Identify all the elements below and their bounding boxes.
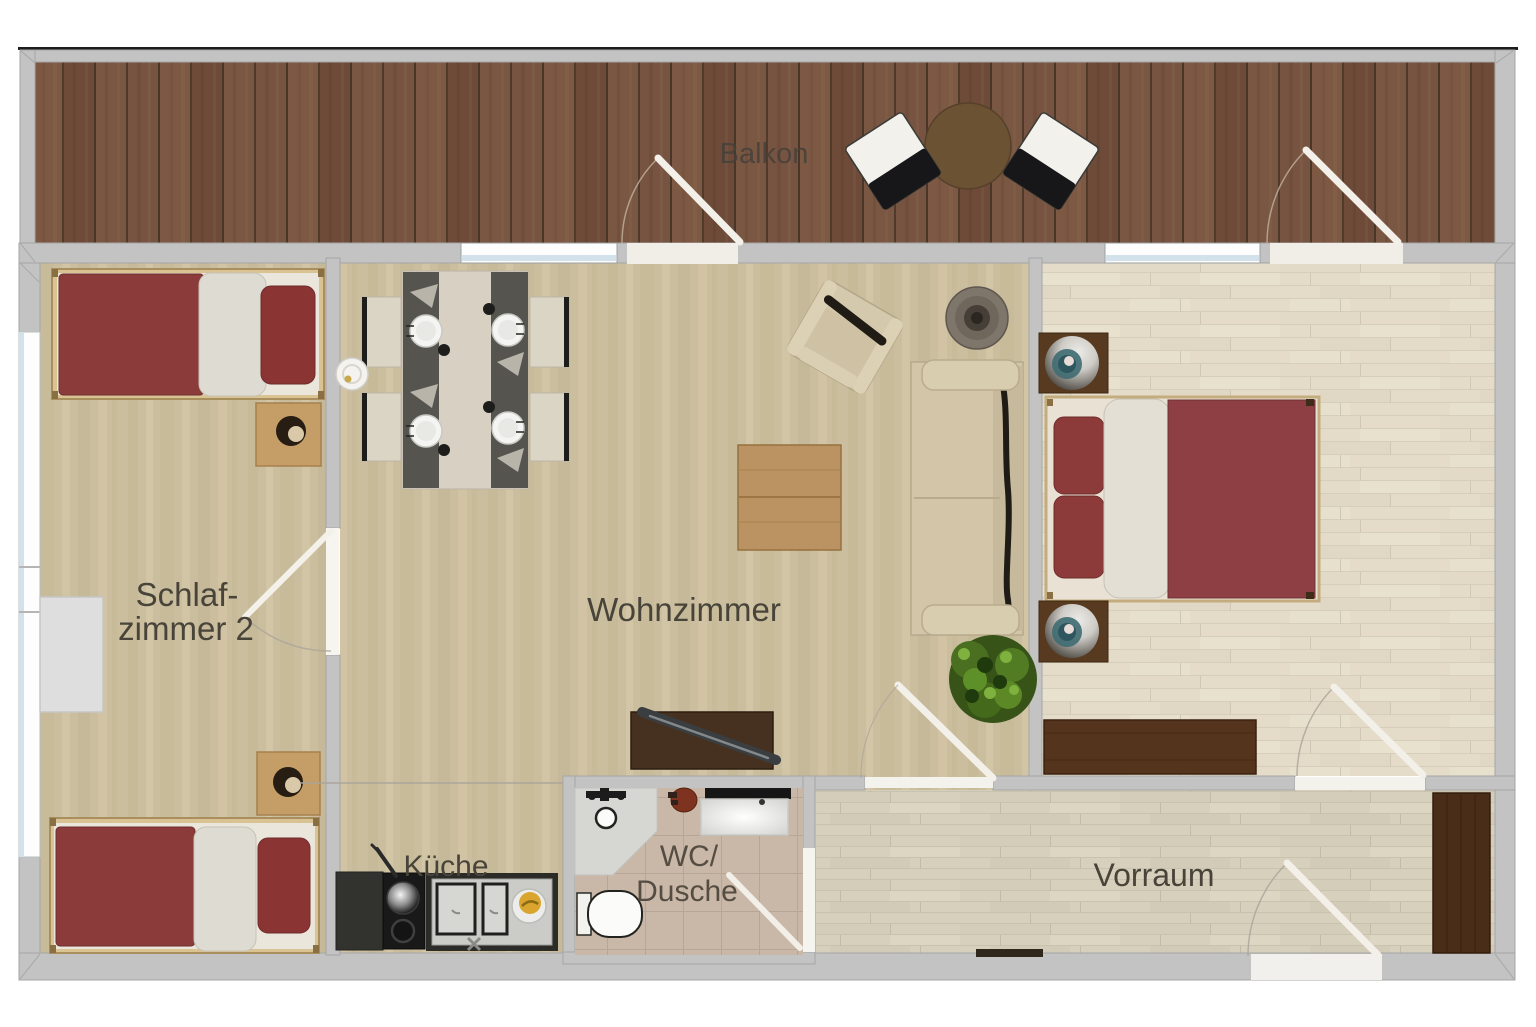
svg-text:Balkon: Balkon [720,138,809,170]
svg-text:Vorraum: Vorraum [1094,857,1215,893]
svg-text:zimmer 2: zimmer 2 [118,610,254,647]
svg-text:Küche: Küche [403,850,488,883]
svg-text:Schlaf-: Schlaf- [136,576,239,613]
svg-text:Wohnzimmer: Wohnzimmer [587,591,781,628]
svg-text:Dusche: Dusche [636,875,738,908]
svg-text:WC/: WC/ [660,840,719,873]
